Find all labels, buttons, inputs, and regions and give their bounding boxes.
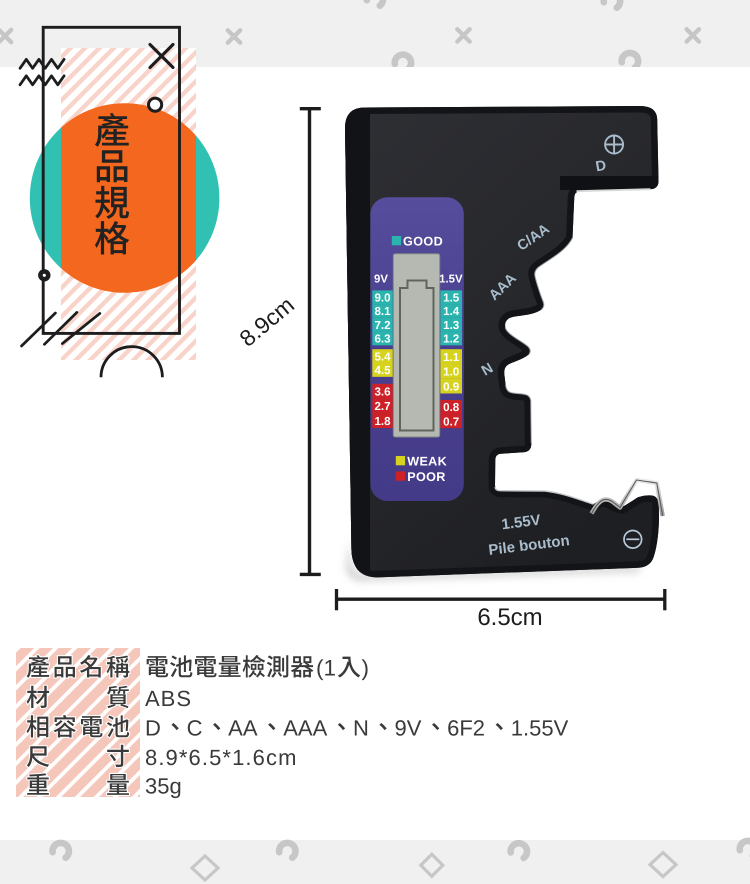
svg-text:C: C: [187, 716, 203, 741]
svg-text:7.2: 7.2: [374, 319, 390, 332]
svg-text:3.6: 3.6: [374, 385, 391, 398]
svg-text:): ): [362, 656, 370, 681]
svg-text:5.4: 5.4: [374, 350, 391, 363]
svg-text:1.3: 1.3: [443, 319, 460, 332]
svg-text:ABS: ABS: [145, 686, 192, 711]
svg-text:1.2: 1.2: [443, 333, 459, 346]
svg-text:1.4: 1.4: [443, 305, 460, 318]
svg-text:35g: 35g: [145, 774, 182, 799]
svg-text:POOR: POOR: [407, 470, 445, 484]
svg-text:9V: 9V: [395, 716, 422, 741]
svg-text:1.5: 1.5: [443, 292, 460, 305]
svg-text:8.1: 8.1: [374, 305, 391, 318]
svg-text:1.55V: 1.55V: [511, 716, 569, 741]
svg-text:0.9: 0.9: [443, 380, 460, 393]
svg-text:6.5cm: 6.5cm: [477, 604, 542, 631]
svg-text:2.7: 2.7: [374, 400, 390, 413]
svg-text:WEAK: WEAK: [407, 455, 447, 469]
svg-text:0.7: 0.7: [443, 415, 459, 428]
svg-text:1.5V: 1.5V: [439, 274, 463, 286]
svg-text:1.1: 1.1: [443, 351, 460, 364]
svg-text:0.8: 0.8: [443, 401, 460, 414]
svg-text:6F2: 6F2: [447, 716, 485, 741]
svg-text:D: D: [145, 716, 161, 741]
svg-text:N: N: [353, 716, 369, 741]
svg-text:6.3: 6.3: [374, 333, 391, 346]
svg-text:1.0: 1.0: [443, 366, 459, 379]
svg-text:4.5: 4.5: [374, 364, 391, 377]
svg-text:9V: 9V: [374, 274, 388, 286]
svg-text:8.9*6.5*1.6cm: 8.9*6.5*1.6cm: [145, 745, 298, 770]
svg-text:(1: (1: [316, 656, 336, 681]
svg-text:GOOD: GOOD: [403, 234, 443, 248]
svg-text:1.8: 1.8: [374, 415, 391, 428]
svg-text:AAA: AAA: [283, 716, 327, 741]
svg-text:9.0: 9.0: [374, 292, 390, 305]
svg-text:AA: AA: [228, 716, 258, 741]
